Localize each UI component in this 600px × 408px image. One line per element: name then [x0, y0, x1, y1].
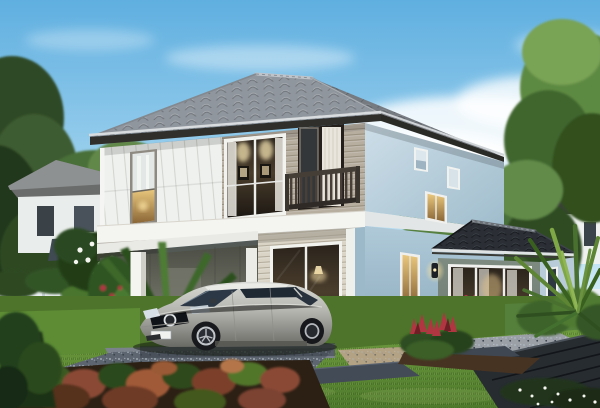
- side-wall-warm-window: [425, 191, 447, 224]
- house-exterior-photo: [0, 0, 600, 408]
- tall-window: [130, 149, 157, 226]
- wall-lamp: [425, 259, 445, 283]
- side-wall-window-a: [414, 147, 428, 172]
- side-wall-window-b: [447, 166, 460, 190]
- lit-picture-window: [224, 133, 286, 221]
